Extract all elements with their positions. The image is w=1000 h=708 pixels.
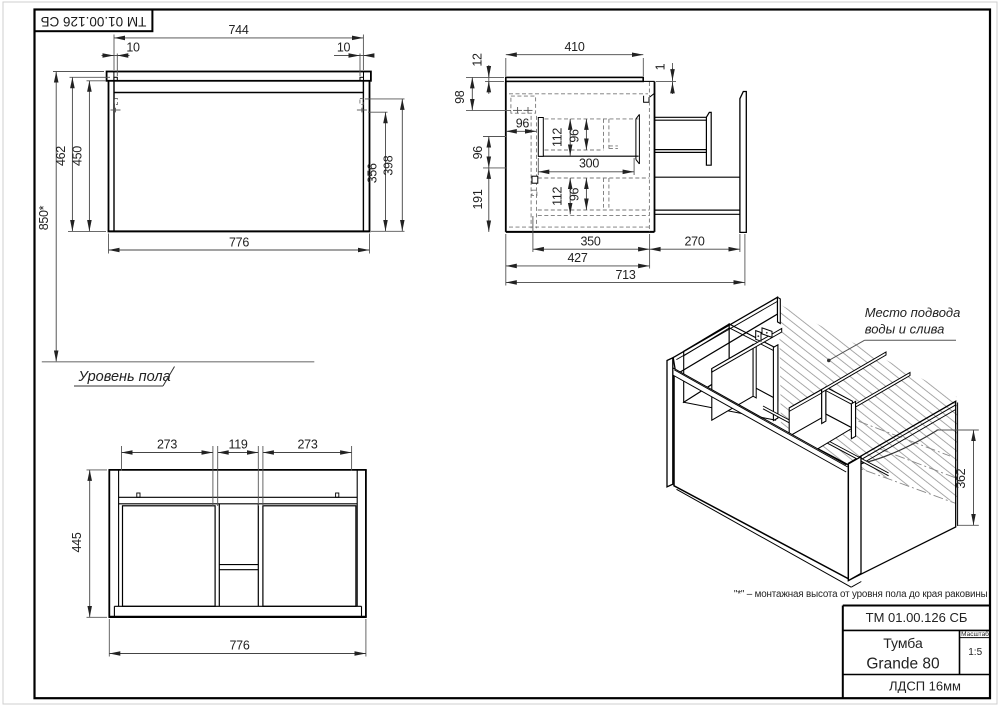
svg-text:445: 445 <box>70 532 84 552</box>
svg-text:427: 427 <box>568 251 588 265</box>
svg-text:112: 112 <box>551 186 565 205</box>
svg-text:96: 96 <box>568 188 582 202</box>
svg-text:96: 96 <box>471 146 485 160</box>
svg-text:98: 98 <box>453 90 467 104</box>
svg-text:119: 119 <box>228 438 247 452</box>
svg-text:112: 112 <box>551 128 565 147</box>
svg-text:450: 450 <box>70 146 84 166</box>
svg-text:Тумба: Тумба <box>883 635 923 651</box>
svg-text:Grande 80: Grande 80 <box>866 656 940 673</box>
svg-text:воды и слива: воды и слива <box>865 322 945 337</box>
svg-text:10: 10 <box>126 41 140 55</box>
svg-text:270: 270 <box>685 235 705 249</box>
svg-text:744: 744 <box>229 23 249 37</box>
svg-text:ТМ 01.00.126 СБ: ТМ 01.00.126 СБ <box>866 610 968 625</box>
svg-text:Масштаб: Масштаб <box>961 630 989 638</box>
svg-text:96: 96 <box>516 117 530 131</box>
svg-text:362: 362 <box>954 468 968 488</box>
svg-text:ТМ 01.00.126 СБ: ТМ 01.00.126 СБ <box>41 14 147 29</box>
svg-text:776: 776 <box>230 639 250 653</box>
svg-text:356: 356 <box>365 163 379 183</box>
svg-text:273: 273 <box>298 438 318 452</box>
svg-text:Уровень пола: Уровень пола <box>78 369 171 385</box>
svg-text:273: 273 <box>157 438 177 452</box>
svg-text:776: 776 <box>229 235 249 249</box>
svg-text:1:5: 1:5 <box>968 647 982 658</box>
svg-text:1: 1 <box>654 63 668 70</box>
svg-text:96: 96 <box>568 129 582 143</box>
svg-text:713: 713 <box>616 268 636 282</box>
svg-text:350: 350 <box>581 235 601 249</box>
svg-text:410: 410 <box>565 40 585 54</box>
svg-text:300: 300 <box>579 157 599 171</box>
svg-text:462: 462 <box>54 146 68 166</box>
svg-text:10: 10 <box>337 41 351 55</box>
svg-text:Место подвода: Место подвода <box>865 305 961 320</box>
svg-text:398: 398 <box>382 155 396 175</box>
svg-text:191: 191 <box>471 189 485 209</box>
svg-text:850*: 850* <box>37 205 51 230</box>
svg-text:ЛДСП 16мм: ЛДСП 16мм <box>889 679 961 694</box>
svg-text:"*" – монтажная высота от уров: "*" – монтажная высота от уровня пола до… <box>734 589 988 600</box>
svg-text:12: 12 <box>471 53 485 67</box>
